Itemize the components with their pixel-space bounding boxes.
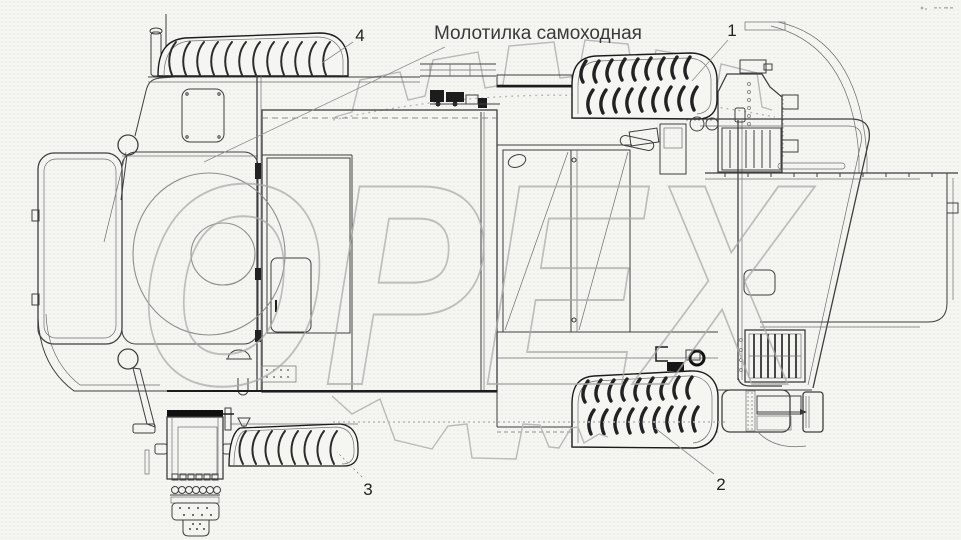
- watermark-text: ОРЕХ: [137, 124, 815, 445]
- corner-mark: [921, 7, 953, 10]
- callout-2-label[interactable]: 2: [716, 475, 725, 494]
- page-title: Молотилка самоходная: [434, 23, 642, 44]
- parts-diagram-page: ОРЕХ Молотилка самоходная 1 2 3 4: [0, 0, 961, 540]
- top-left-tire: [158, 33, 348, 76]
- top-right-tire: [572, 53, 717, 119]
- callout-1-label[interactable]: 1: [727, 21, 736, 40]
- callout-3-label[interactable]: 3: [363, 480, 372, 499]
- thresher-parts-diagram: ОРЕХ Молотилка самоходная 1 2 3 4: [0, 0, 961, 540]
- mirror-top: [118, 135, 138, 200]
- callout-4-label[interactable]: 4: [355, 26, 364, 45]
